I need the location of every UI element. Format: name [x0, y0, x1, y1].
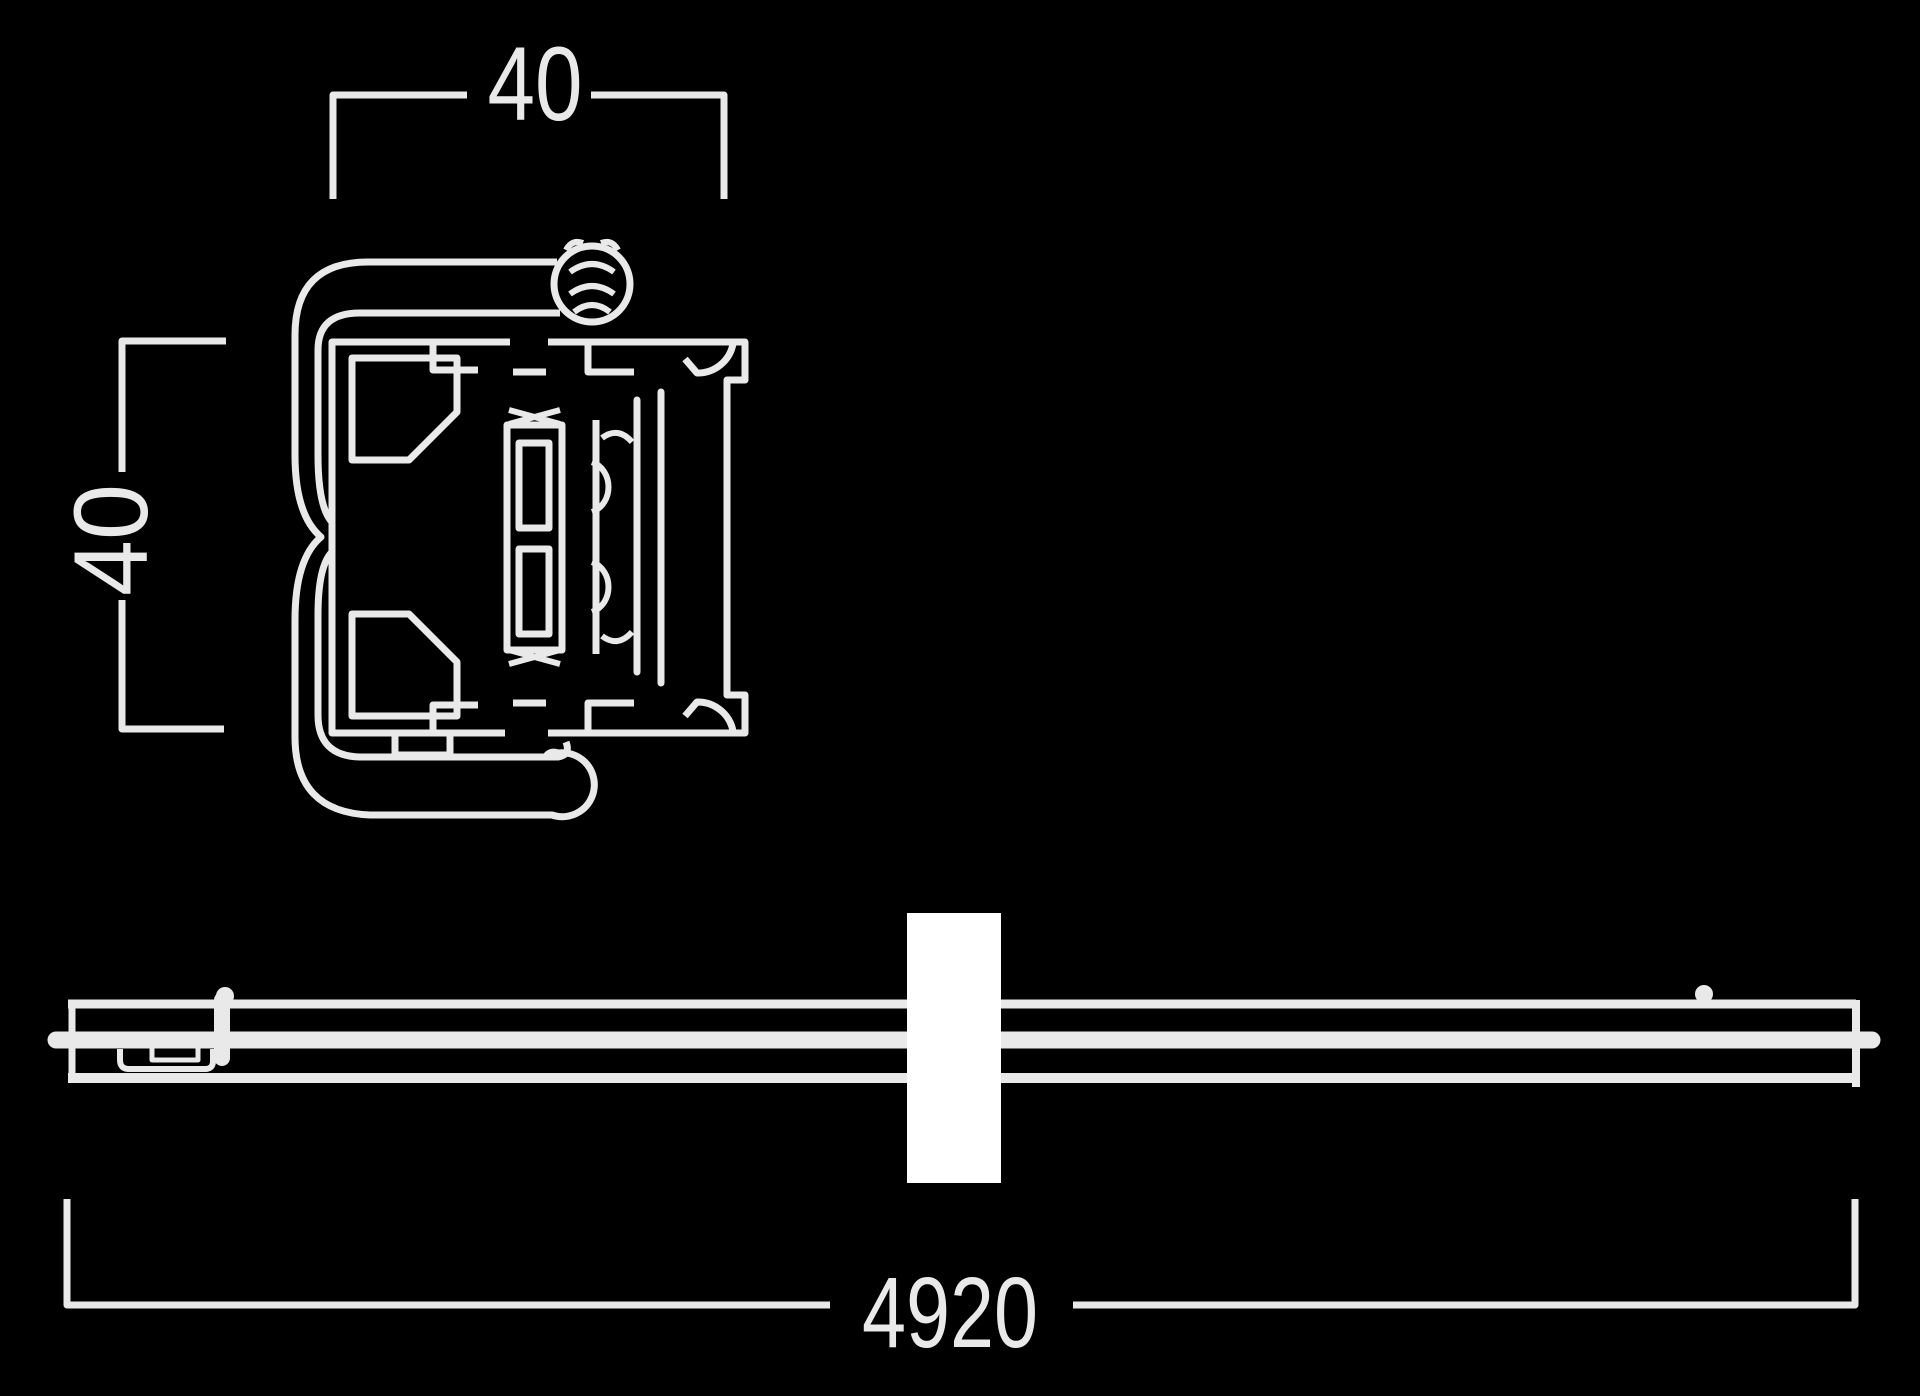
drawing-canvas: 40 40 [0, 0, 1920, 1396]
left-dimension-bracket-top [122, 341, 226, 472]
rail-break-symbol [907, 913, 1001, 1183]
right-frame-channel [548, 342, 745, 733]
top-dimension-bracket-right [591, 95, 724, 199]
frame-right-notch-bottom [685, 702, 733, 731]
rail-length-label: 4920 [862, 1257, 1038, 1369]
frame-right-outline [548, 342, 745, 733]
center-roller-column [507, 410, 562, 664]
left-height-dimension: 40 [53, 341, 226, 729]
profile-width-label: 40 [488, 26, 583, 143]
profile-cross-section [295, 242, 745, 817]
rail-right-screw-knob [1695, 985, 1713, 1003]
top-width-dimension: 40 [333, 26, 724, 199]
bottom-slot-step-right [588, 703, 634, 733]
top-dimension-bracket-left [333, 95, 467, 199]
profile-height-label: 40 [53, 484, 170, 596]
bottom-dimension-bracket-right [1073, 1199, 1855, 1305]
frame-panel-lower [352, 614, 457, 716]
frame-right-notch-top [685, 344, 733, 373]
knurled-screw-icon [554, 242, 630, 322]
bottom-length-dimension: 4920 [67, 1199, 1855, 1369]
rail-side-view [56, 913, 1872, 1183]
bottom-dimension-bracket-left [67, 1199, 830, 1305]
frame-left-outline [332, 342, 510, 733]
technical-drawing: 40 40 [0, 0, 1920, 1396]
left-dimension-bracket-bottom [122, 600, 224, 729]
top-slot-step-right [588, 342, 634, 372]
